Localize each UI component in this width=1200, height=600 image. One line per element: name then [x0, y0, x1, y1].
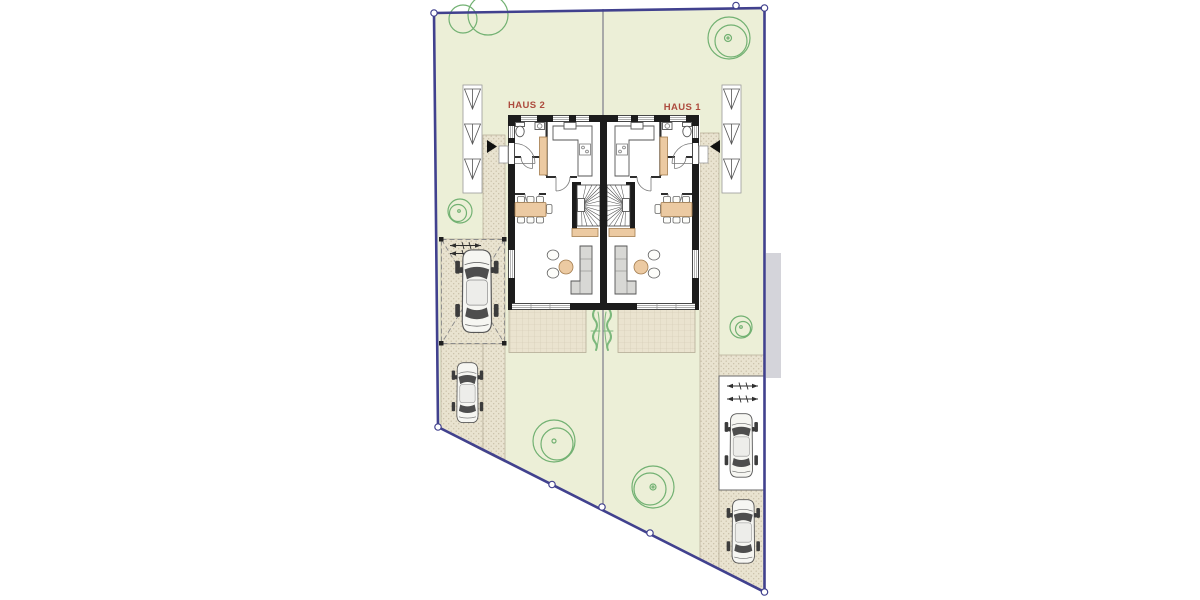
- site-plan-page: HAUS 2 HAUS 1: [0, 0, 1200, 600]
- entrance-step-haus1: [699, 146, 708, 163]
- path-east: [700, 133, 719, 569]
- path-east-connector: [719, 355, 765, 376]
- site-plan-canvas: HAUS 2 HAUS 1: [0, 0, 1200, 600]
- palisade-east: [722, 85, 741, 193]
- terrace-haus1: [618, 307, 695, 353]
- entrance-step-haus2: [499, 146, 508, 163]
- neighbor-strip: [766, 253, 781, 378]
- party-wall: [600, 115, 607, 310]
- house-label-haus1: HAUS 1: [664, 102, 702, 113]
- palisade-west: [463, 85, 482, 193]
- house-label-haus2: HAUS 2: [508, 100, 545, 111]
- path-west-lower: [483, 344, 505, 462]
- terrace-haus2: [509, 307, 586, 353]
